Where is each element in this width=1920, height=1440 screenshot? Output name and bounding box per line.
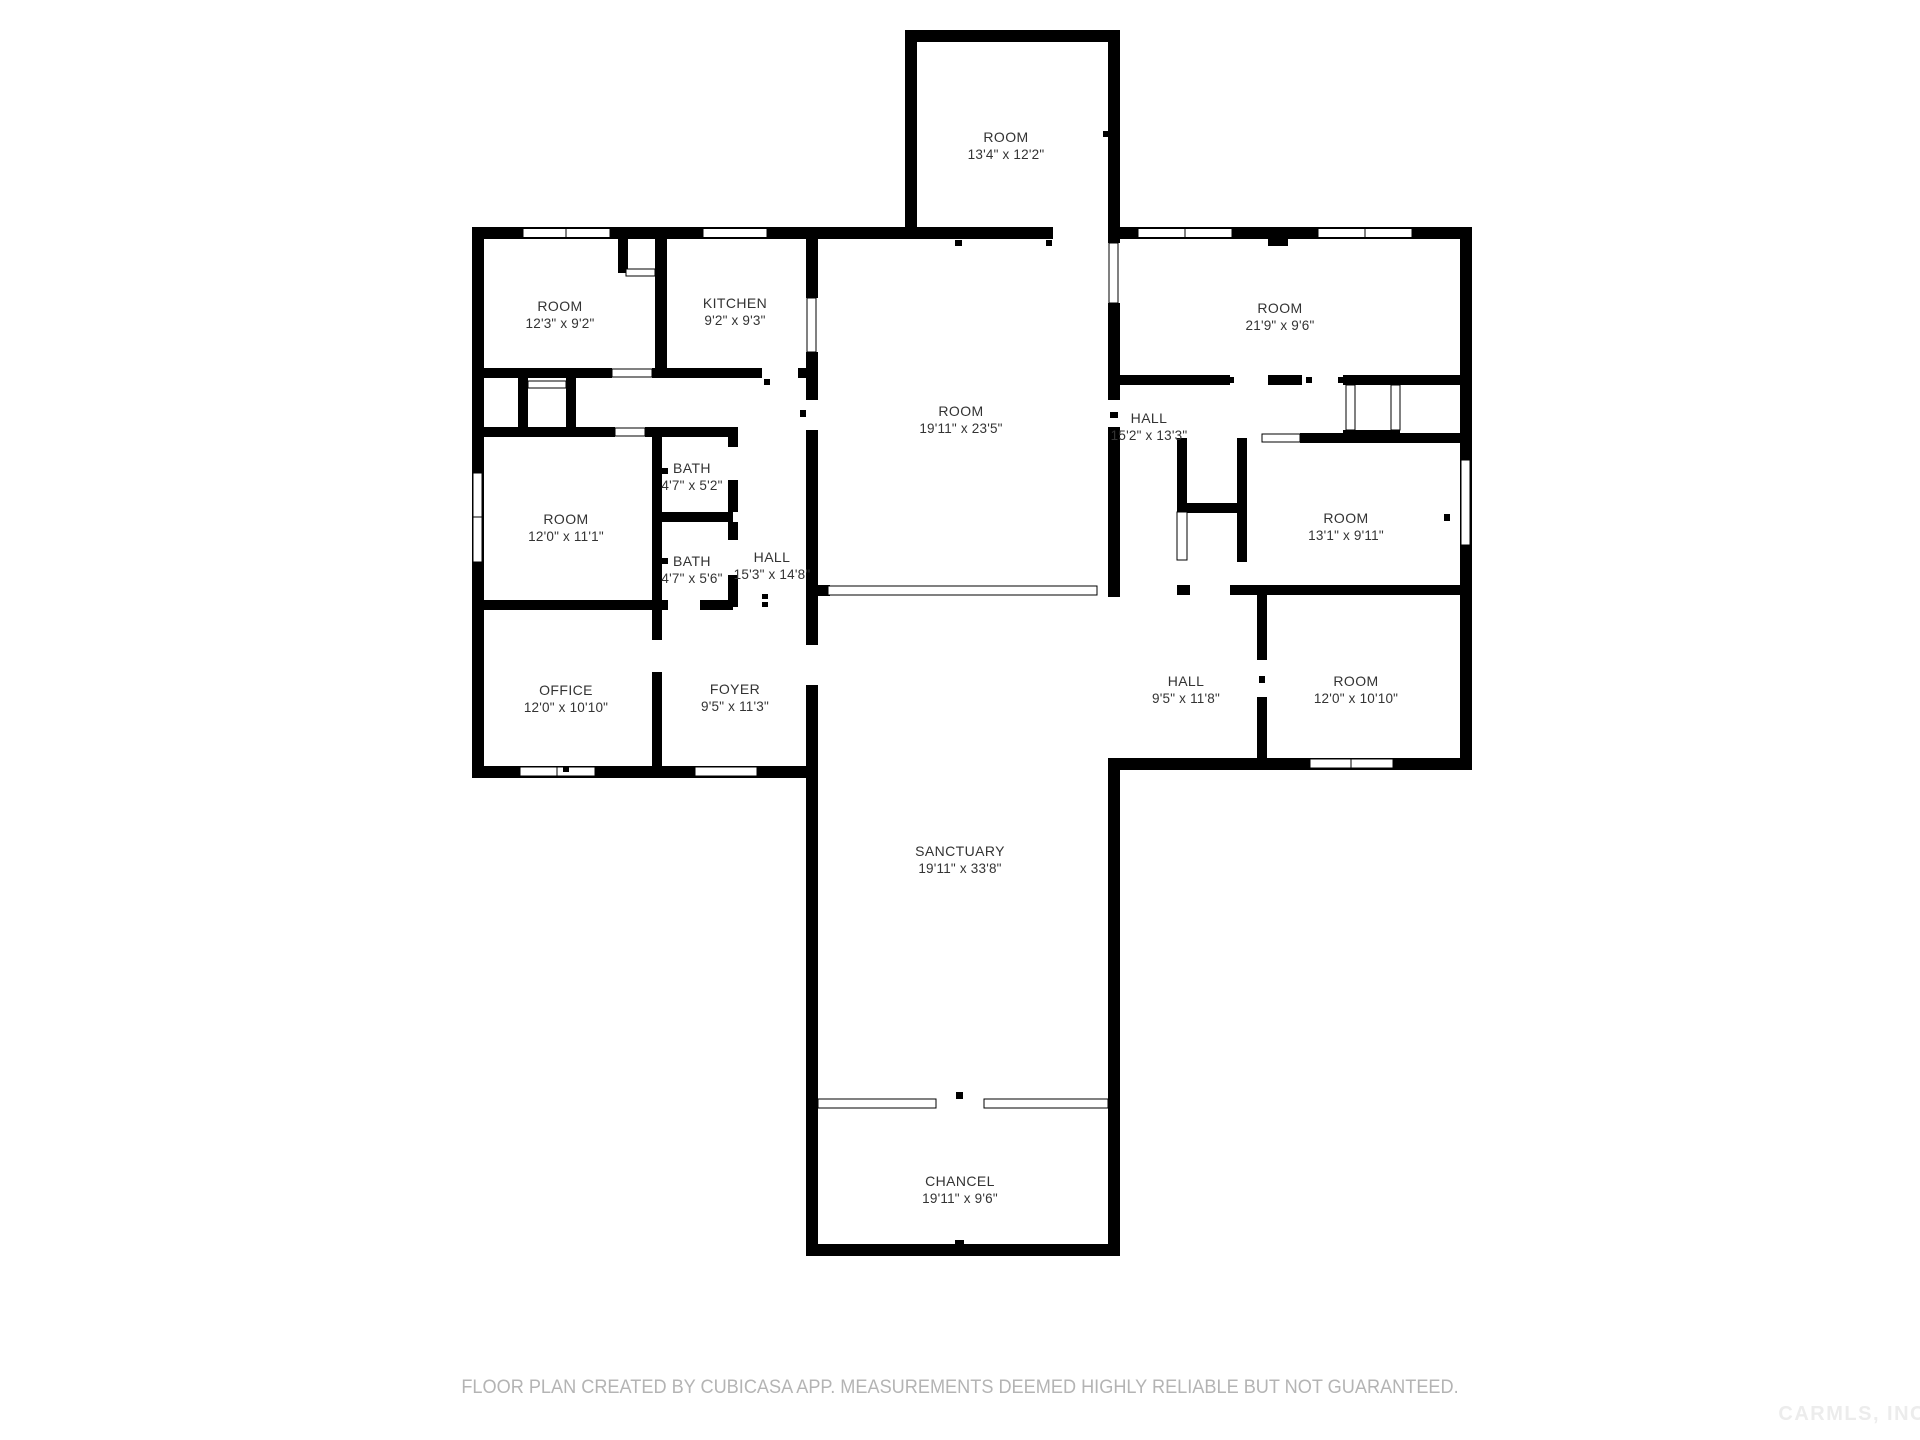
room-label: HALL15'2" x 13'3": [1111, 410, 1188, 444]
room-dims: 19'11" x 23'5": [919, 420, 1002, 437]
room-dims: 13'1" x 9'11": [1308, 527, 1384, 544]
room-label: ROOM12'0" x 10'10": [1314, 673, 1398, 707]
room-name: ROOM: [1308, 510, 1384, 527]
room-name: BATH: [661, 553, 722, 570]
room-name: KITCHEN: [703, 295, 767, 312]
room-name: HALL: [1111, 410, 1188, 427]
room-name: CHANCEL: [922, 1173, 998, 1190]
room-name: BATH: [661, 460, 722, 477]
floor-plan-drawing: [0, 0, 1920, 1440]
room-dims: 12'0" x 10'10": [524, 699, 608, 716]
room-dims: 15'3" x 14'8": [734, 566, 811, 583]
room-label: CHANCEL19'11" x 9'6": [922, 1173, 998, 1207]
room-dims: 9'2" x 9'3": [703, 312, 767, 329]
room-dims: 4'7" x 5'6": [661, 570, 722, 587]
room-label: BATH4'7" x 5'6": [661, 553, 722, 587]
room-label: ROOM12'0" x 11'1": [528, 511, 604, 545]
room-name: ROOM: [1314, 673, 1398, 690]
room-label: ROOM13'4" x 12'2": [968, 129, 1045, 163]
room-name: ROOM: [526, 298, 595, 315]
room-name: OFFICE: [524, 682, 608, 699]
room-dims: 15'2" x 13'3": [1111, 427, 1188, 444]
room-name: ROOM: [528, 511, 604, 528]
room-label: HALL9'5" x 11'8": [1152, 673, 1220, 707]
room-name: ROOM: [968, 129, 1045, 146]
room-dims: 21'9" x 9'6": [1246, 317, 1315, 334]
room-label: ROOM12'3" x 9'2": [526, 298, 595, 332]
disclaimer-text: FLOOR PLAN CREATED BY CUBICASA APP. MEAS…: [67, 1376, 1853, 1399]
room-label: ROOM21'9" x 9'6": [1246, 300, 1315, 334]
room-name: HALL: [1152, 673, 1220, 690]
room-dims: 19'11" x 9'6": [922, 1190, 998, 1207]
floor-plan-canvas: ROOM13'4" x 12'2"ROOM12'3" x 9'2"KITCHEN…: [0, 0, 1920, 1440]
room-label: ROOM13'1" x 9'11": [1308, 510, 1384, 544]
room-name: FOYER: [701, 681, 769, 698]
room-name: HALL: [734, 549, 811, 566]
room-dims: 4'7" x 5'2": [661, 477, 722, 494]
room-label: OFFICE12'0" x 10'10": [524, 682, 608, 716]
room-label: HALL15'3" x 14'8": [734, 549, 811, 583]
room-dims: 13'4" x 12'2": [968, 146, 1045, 163]
room-dims: 9'5" x 11'3": [701, 698, 769, 715]
room-label: BATH4'7" x 5'2": [661, 460, 722, 494]
room-name: ROOM: [919, 403, 1002, 420]
room-name: SANCTUARY: [915, 843, 1005, 860]
room-dims: 12'0" x 11'1": [528, 528, 604, 545]
room-label: ROOM19'11" x 23'5": [919, 403, 1002, 437]
room-name: ROOM: [1246, 300, 1315, 317]
room-dims: 12'0" x 10'10": [1314, 690, 1398, 707]
room-label: SANCTUARY19'11" x 33'8": [915, 843, 1005, 877]
room-dims: 12'3" x 9'2": [526, 315, 595, 332]
room-label: KITCHEN9'2" x 9'3": [703, 295, 767, 329]
room-label: FOYER9'5" x 11'3": [701, 681, 769, 715]
watermark: CARMLS, INC: [1778, 1403, 1920, 1426]
walls: [472, 30, 1472, 1256]
room-dims: 9'5" x 11'8": [1152, 690, 1220, 707]
room-dims: 19'11" x 33'8": [915, 860, 1005, 877]
